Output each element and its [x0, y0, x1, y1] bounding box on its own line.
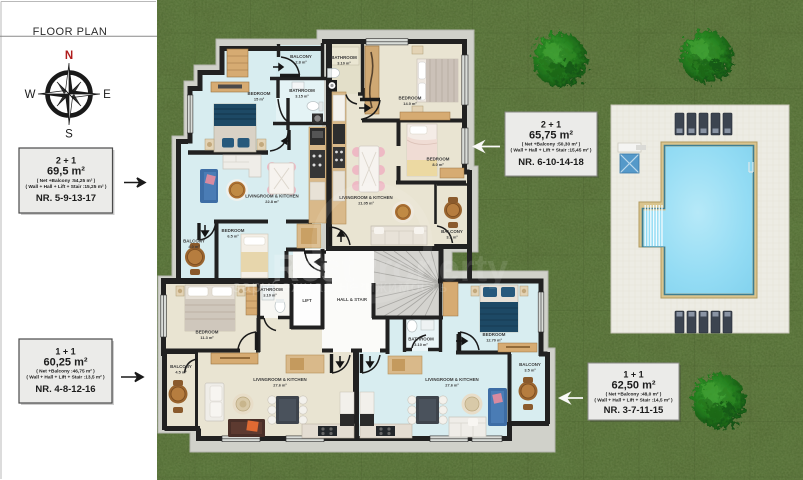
svg-text:зарубежная нед: зарубежная нед — [233, 278, 370, 296]
svg-text:4.0 m²: 4.0 m² — [188, 244, 200, 249]
svg-text:BEDROOM: BEDROOM — [483, 332, 506, 337]
svg-text:( Wall + Hall + Lift + Stair :: ( Wall + Hall + Lift + Stair :15,45 m² ) — [511, 148, 592, 154]
svg-text:1 + 1: 1 + 1 — [623, 370, 643, 380]
svg-text:вижимость: вижимость — [356, 278, 448, 296]
svg-text:21.05 m²: 21.05 m² — [358, 201, 374, 206]
svg-text:8.0 m²: 8.0 m² — [432, 162, 444, 167]
svg-text:BEDROOM: BEDROOM — [399, 96, 422, 101]
svg-text:( Net +Balcony :46,75 m² ): ( Net +Balcony :46,75 m² ) — [36, 369, 95, 375]
svg-text:N: N — [65, 50, 73, 62]
svg-text:3.15 m²: 3.15 m² — [295, 94, 309, 99]
svg-text:BEDROOM: BEDROOM — [248, 91, 271, 96]
svg-text:3.5 m²: 3.5 m² — [524, 368, 536, 373]
svg-text:3.10 m²: 3.10 m² — [414, 342, 428, 347]
svg-text:3.5 m²: 3.5 m² — [446, 235, 458, 240]
svg-text:62,50 m²: 62,50 m² — [611, 380, 655, 392]
svg-text:27.6 m²: 27.6 m² — [273, 383, 287, 388]
svg-text:4.5 m²: 4.5 m² — [175, 370, 187, 375]
svg-text:BALCONY: BALCONY — [290, 54, 312, 59]
svg-text:14.0 m²: 14.0 m² — [403, 101, 417, 106]
svg-text:2 + 1: 2 + 1 — [56, 156, 76, 166]
svg-text:BATHROOM: BATHROOM — [289, 88, 315, 93]
svg-text:11.3 m²: 11.3 m² — [200, 335, 214, 340]
svg-text:15 m²: 15 m² — [254, 97, 265, 102]
svg-text:NR. 4-8-12-16: NR. 4-8-12-16 — [35, 384, 95, 395]
svg-text:27.6 m²: 27.6 m² — [445, 383, 459, 388]
svg-text:LIFT: LIFT — [302, 298, 312, 303]
svg-text:LIVINGROOM & KITCHEN: LIVINGROOM & KITCHEN — [253, 377, 306, 382]
svg-text:( Net +Balcony :54,25 m² ): ( Net +Balcony :54,25 m² ) — [37, 178, 96, 184]
svg-text:E: E — [103, 89, 111, 101]
svg-text:22.8 m²: 22.8 m² — [265, 199, 279, 204]
svg-text:( Wall + Hall + Lift + Stair :: ( Wall + Hall + Lift + Stair :15,25 m² ) — [26, 184, 107, 190]
svg-text:65,75 m²: 65,75 m² — [529, 130, 573, 142]
svg-text:( Wall + Hall + Lift + Stair :: ( Wall + Hall + Lift + Stair :14,5 m² ) — [594, 398, 673, 404]
svg-text:LIVINGROOM & KITCHEN: LIVINGROOM & KITCHEN — [245, 194, 298, 199]
svg-text:NR. 5-9-13-17: NR. 5-9-13-17 — [36, 193, 96, 204]
svg-text:LIVINGROOM & KITCHEN: LIVINGROOM & KITCHEN — [425, 377, 478, 382]
svg-text:6.5 m²: 6.5 m² — [227, 234, 239, 239]
svg-text:( Net +Balcony :50,30 m² ): ( Net +Balcony :50,30 m² ) — [522, 142, 581, 148]
svg-text:W: W — [25, 89, 36, 101]
svg-text:BEDROOM: BEDROOM — [427, 157, 450, 162]
svg-text:BATHROOM: BATHROOM — [408, 337, 434, 342]
svg-text:BALCONY: BALCONY — [170, 364, 192, 369]
svg-text:3.10 m²: 3.10 m² — [337, 61, 351, 66]
svg-text:S: S — [65, 129, 73, 141]
svg-text:2 + 1: 2 + 1 — [541, 120, 561, 130]
svg-text:2.8 m²: 2.8 m² — [295, 60, 307, 65]
svg-text:( Net +Balcony :48,0 m² ): ( Net +Balcony :48,0 m² ) — [606, 392, 662, 398]
svg-text:BEDROOM: BEDROOM — [196, 330, 219, 335]
svg-text:BATHROOM: BATHROOM — [331, 55, 357, 60]
svg-text:( Wall + Hall + Lift + Stair :: ( Wall + Hall + Lift + Stair :13,5 m² ) — [26, 375, 105, 381]
svg-text:BEDROOM: BEDROOM — [222, 228, 245, 233]
svg-text:BALCONY: BALCONY — [441, 229, 463, 234]
svg-text:60,25 m²: 60,25 m² — [43, 357, 87, 369]
svg-text:NR. 3-7-11-15: NR. 3-7-11-15 — [604, 405, 664, 416]
svg-text:BALCONY: BALCONY — [183, 239, 205, 244]
svg-text:NR. 6-10-14-18: NR. 6-10-14-18 — [518, 157, 583, 168]
svg-text:1 + 1: 1 + 1 — [55, 347, 75, 357]
svg-text:BALCONY: BALCONY — [519, 362, 541, 367]
svg-text:69,5 m²: 69,5 m² — [47, 166, 85, 178]
svg-text:12.70 m²: 12.70 m² — [486, 338, 502, 343]
